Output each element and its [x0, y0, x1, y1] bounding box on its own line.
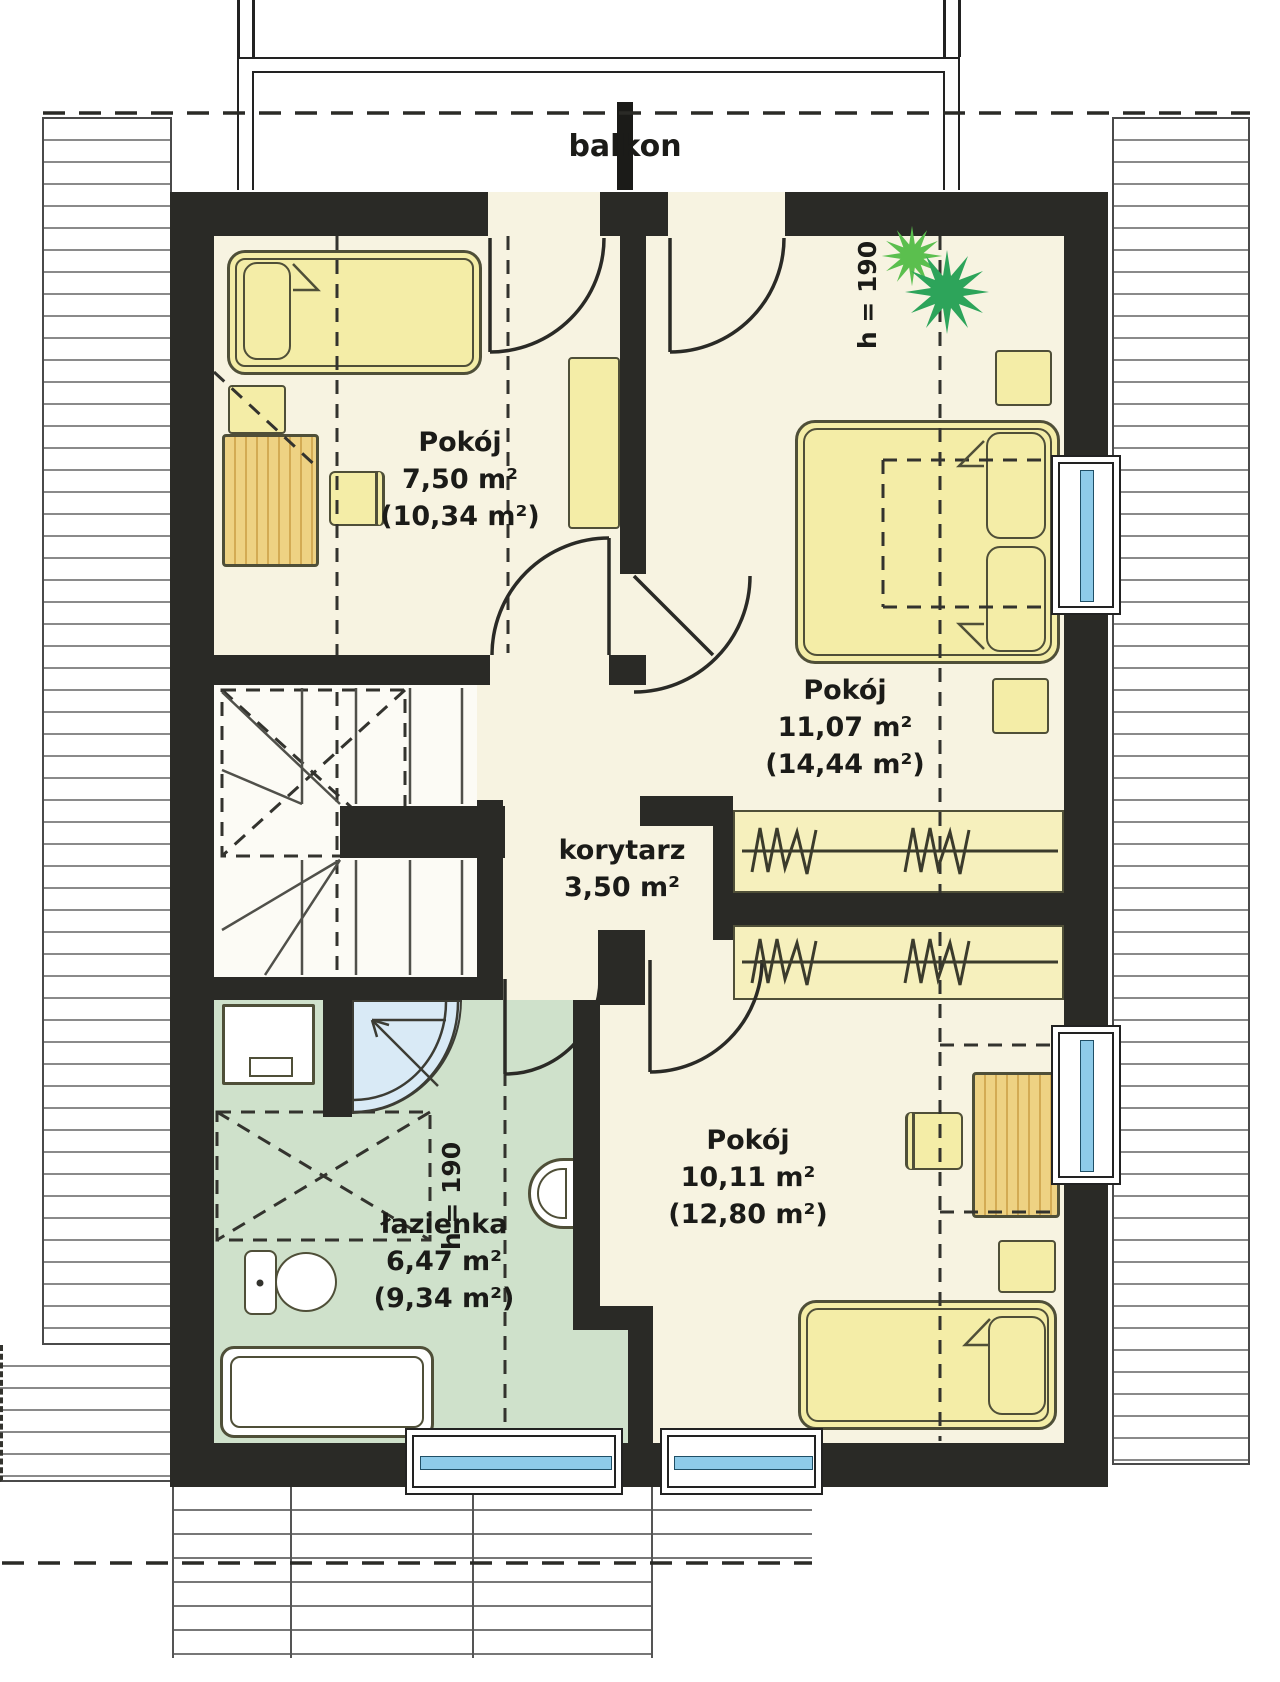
side-table	[228, 385, 286, 434]
nightstand	[998, 1240, 1056, 1293]
ceiling-height-label: h = 190	[853, 225, 883, 365]
floor-plan: { "balcony": { "label": "balkon" }, "roo…	[0, 0, 1280, 1682]
balcony-rail-post	[943, 0, 946, 57]
room-label-top-right: Pokój 11,07 m² (14,44 m²)	[715, 672, 975, 783]
stair-landing-wall	[340, 806, 505, 858]
bathtub	[220, 1346, 434, 1438]
washing-machine	[222, 1004, 315, 1085]
terrace-divider	[290, 1487, 292, 1658]
window	[1051, 455, 1121, 615]
room-area-gross: (9,34 m²)	[314, 1280, 574, 1317]
wall-segment	[598, 930, 645, 1005]
nightstand	[995, 350, 1052, 406]
wall-segment	[609, 655, 646, 685]
floor-bathroom	[600, 1330, 628, 1443]
door-opening	[488, 192, 600, 236]
balcony-rail-post	[252, 0, 255, 57]
balcony-rail-post	[958, 0, 961, 57]
balcony-label: balkon	[500, 128, 750, 165]
window	[1051, 1025, 1121, 1185]
wall-segment	[573, 1000, 600, 1306]
desk	[222, 434, 319, 567]
chair	[905, 1112, 963, 1170]
room-area: 7,50 m²	[330, 461, 590, 498]
desk	[972, 1072, 1060, 1218]
balcony-rail-post	[237, 0, 240, 57]
terrace-divider	[472, 1487, 474, 1658]
pillow	[986, 546, 1046, 652]
room-area-gross: (14,44 m²)	[715, 746, 975, 783]
wall-segment	[620, 236, 646, 574]
pillow	[243, 262, 291, 360]
terrace-steps-right	[653, 1487, 812, 1562]
room-area: 3,50 m²	[492, 869, 752, 906]
room-area-gross: (12,80 m²)	[618, 1196, 878, 1233]
washing-machine-detail	[249, 1057, 293, 1077]
window	[660, 1428, 823, 1495]
wall-segment	[214, 977, 503, 1000]
corridor-label: korytarz 3,50 m²	[492, 832, 752, 906]
room-label-top-left: Pokój 7,50 m² (10,34 m²)	[330, 424, 590, 535]
wall-segment	[323, 1000, 352, 1117]
wall-segment	[713, 893, 1064, 925]
room-label-bottom-right: Pokój 10,11 m² (12,80 m²)	[618, 1122, 878, 1233]
room-name: Pokój	[715, 672, 975, 709]
room-name: Pokój	[618, 1122, 878, 1159]
wall-segment	[214, 655, 490, 685]
terrace-steps	[172, 1487, 653, 1658]
room-name: korytarz	[492, 832, 752, 869]
wardrobe-upper	[733, 810, 1064, 893]
window	[405, 1428, 623, 1495]
ceiling-height-label: h = 190	[437, 1126, 467, 1266]
room-name: Pokój	[330, 424, 590, 461]
toilet-tank	[244, 1250, 277, 1315]
room-area: 11,07 m²	[715, 709, 975, 746]
wardrobe-lower	[733, 925, 1064, 1000]
nightstand	[992, 678, 1049, 734]
roof-hatch-right	[1112, 117, 1250, 1465]
room-area: 10,11 m²	[618, 1159, 878, 1196]
roof-hatch-left	[42, 117, 172, 1345]
pillow	[988, 1316, 1046, 1415]
room-area-gross: (10,34 m²)	[330, 498, 590, 535]
door-opening	[668, 192, 785, 236]
wall-segment	[628, 1306, 653, 1443]
pillow	[986, 432, 1046, 539]
